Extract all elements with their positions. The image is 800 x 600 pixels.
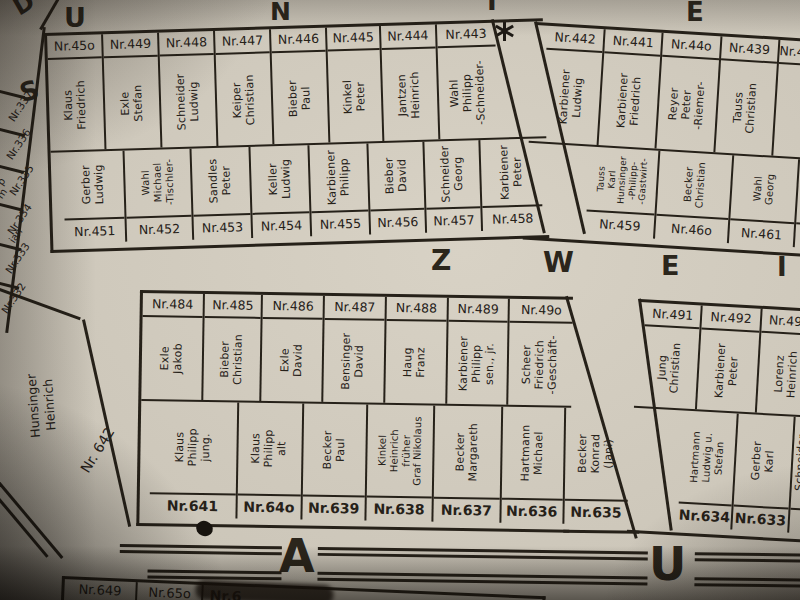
- plot-cell: Becker Konrad (Jani)Nr.635: [562, 408, 629, 525]
- plot-owner-name: Haug Franz: [402, 347, 428, 378]
- plot-owner-name: Wahl Philipp -Schneider-: [447, 60, 488, 126]
- plot-number: [789, 508, 800, 534]
- plot-owner-name: Jung Christian: [655, 342, 684, 394]
- plot-owner-name: Kinkel Peter: [341, 79, 368, 114]
- name-fragment: p: [0, 176, 8, 187]
- plot-owner-name: Wahl Georg: [752, 172, 777, 205]
- plot-number: Nr.455: [312, 209, 370, 236]
- plot-number: Nr.457: [426, 206, 481, 233]
- plot-owner-name: Scheer Friedrich -Geschäft-: [521, 334, 561, 394]
- plot-cell: Nr.489Karbiener Philipp sen., jr.: [445, 298, 508, 405]
- plot-number: Nr.487: [325, 296, 385, 321]
- plot-number: Nr.461: [729, 218, 795, 247]
- plot-number: Nr.442: [546, 26, 604, 53]
- plot-cell: Becker PaulNr.639: [300, 404, 366, 521]
- plot-number: Nr.492: [701, 306, 760, 333]
- plot-number: Nr.446: [271, 28, 326, 54]
- block-442-461: Nr.442Karbiener Ludwig Nr.441Karbiener F…: [523, 22, 800, 257]
- plot-owner-name: Bieber Christian: [219, 334, 246, 385]
- plot-number: Nr.484: [143, 293, 203, 318]
- plot-cell: Nr.447Keiper Christian: [213, 29, 272, 146]
- plot-number: Nr.451: [65, 217, 125, 244]
- plot-cell: Nr.493Lorenz Heinrich: [755, 309, 800, 416]
- plot-number: Nr.641: [149, 492, 235, 518]
- plot-owner-name: Bieber Paul: [287, 79, 314, 117]
- plot-cell: Nr.443Wahl Philipp -Schneider-: [435, 23, 499, 140]
- plot-cell: Nr.649: [63, 579, 136, 600]
- map-line: [0, 479, 63, 559]
- street-letter: T: [483, 0, 501, 16]
- plot-cell: Nr.6: [201, 585, 347, 600]
- plot-cell: Gerber KarlNr.633: [730, 414, 794, 533]
- plot-owner-name: Hunsinger Heinrich: [24, 372, 61, 438]
- plot-cell: Nr.65o: [134, 582, 202, 600]
- plot-cell: Nr.488Haug Franz: [383, 297, 446, 404]
- plot-cell: Nr.444Jantzen Heinrich: [379, 24, 438, 141]
- street-letter: W: [543, 246, 574, 279]
- plot-owner-name: Klaus Friedrich: [62, 80, 89, 130]
- plot-owner-name: Lorenz Heinrich: [772, 350, 800, 399]
- plot-number: Nr.454: [253, 211, 311, 238]
- plot-cell: Nr.49oScheer Friedrich -Geschäft-: [507, 299, 573, 406]
- plot-owner-name: Schneider Georg: [439, 145, 467, 203]
- plot-number: Nr.489: [448, 298, 508, 323]
- plot-cell: Tauss Karl Hunsinger -Philipp- -Gastwirt…: [585, 147, 658, 239]
- plot-owner-name: Kinkel Heinrich früher Graf Nikolaus: [376, 415, 424, 485]
- plot-owner-name: Tauss Christian: [731, 82, 760, 134]
- plot-number: Nr.456: [370, 208, 425, 235]
- plot-number: Nr.44o: [663, 33, 721, 60]
- plot-number: Nr.45o: [47, 34, 102, 60]
- plot-owner-name: Hartmann Michael: [519, 424, 546, 481]
- plot-cell: [345, 591, 543, 600]
- plot-owner-name: Reyer Peter -Riemer-: [667, 79, 709, 130]
- plot-owner-name: Tauss Karl Hunsinger -Philipp- -Gastwirt…: [595, 155, 651, 206]
- plot-number: Nr.438: [779, 40, 800, 66]
- map-line: [39, 0, 60, 30]
- plot-owner-name: Karbiener Ludwig: [557, 69, 586, 126]
- plot-cell: Nr.484Exle Jakob: [141, 293, 202, 400]
- plot-owner-name: Schneider Ludwig: [174, 72, 202, 130]
- plot-cell: Nr.446Bieber Paul: [269, 28, 328, 145]
- plot-owner-name: Becker Paul: [321, 430, 348, 469]
- plot-owner-name: Wahl Michael -Tischler-: [140, 159, 177, 206]
- plot-owner-name: Karbiener Peter: [498, 144, 526, 200]
- block-450-458: Nr.45oKlaus Friedrich Nr.449Exle Stefan …: [44, 18, 549, 253]
- plot-cell: Klaus Philipp jung.Nr.641: [149, 401, 236, 518]
- street-letter: E: [686, 0, 704, 27]
- plot-owner-name: Karbiener Philipp sen., jr.: [457, 335, 497, 391]
- plot-number: Nr.637: [433, 497, 499, 523]
- plot-number: Nr.445: [327, 26, 379, 52]
- plot-number: Nr.452: [126, 215, 192, 242]
- plot-number: Nr.439: [721, 36, 779, 63]
- plot-number: Nr.491: [644, 302, 700, 329]
- plot-cell: Nr.439Tauss Christian: [713, 36, 778, 155]
- plot-owner-name: Becker Margareth: [454, 422, 481, 481]
- plot-cell: Nr.487Bensinger David: [321, 296, 384, 403]
- plot-owner-name: Keller Ludwig: [267, 159, 294, 200]
- plot-number: Nr.441: [604, 29, 662, 56]
- plot-owner-name: Karbiener Friedrich: [615, 73, 644, 130]
- plot-number: Nr.635: [564, 499, 628, 525]
- plot-owner-name: Bieber David: [383, 157, 410, 195]
- plot-number: [795, 222, 800, 248]
- plot-owner-name: Exle David: [279, 344, 305, 377]
- plot-cell: Nr.441Karbiener Friedrich: [597, 29, 662, 148]
- plot-owner-name: Schneider: [793, 434, 800, 492]
- plot-owner-name: Klaus Philipp alt: [250, 429, 290, 468]
- plot-number: Nr.64o: [237, 494, 301, 520]
- street-letter: D: [8, 0, 39, 21]
- plot-number: Nr.448: [159, 31, 214, 57]
- plot-number: Nr.634: [677, 501, 731, 529]
- plot-cell: Nr.448Schneider Ludwig: [157, 31, 216, 148]
- plot-number: Nr.638: [367, 496, 432, 522]
- block-484-641: Nr.484Exle Jakob Nr.485Bieber Christian …: [136, 290, 573, 533]
- plot-owner-name: Klaus Philipp jung.: [174, 428, 214, 467]
- plot-cell: Nr.445Kinkel Peter: [325, 26, 382, 143]
- street-letter: I: [777, 252, 787, 282]
- block-491-634: Nr.491Jung Christian Nr.492Karbiener Pet…: [627, 299, 800, 543]
- plot-owner-name: Keiper Christian: [231, 74, 258, 126]
- plot-cell: Schneider GeorgNr.457: [423, 140, 482, 233]
- plot-cell: Becker ChristianNr.46o: [653, 151, 732, 243]
- plot-number: Nr.486: [263, 295, 323, 320]
- plot-number: Nr.459: [585, 209, 655, 238]
- plot-number: Nr.449: [103, 33, 158, 59]
- street-letter: Z: [431, 244, 451, 277]
- plot-number: Nr.49o: [510, 299, 573, 324]
- plot-cell: Hartmann Ludwig u. StefanNr.634: [677, 411, 736, 530]
- plot-owner-name: Gerber Karl: [750, 440, 778, 481]
- plot-cell: Sandles PeterNr.453: [190, 147, 252, 240]
- plot-number: Nr.488: [386, 297, 446, 322]
- plot-owner-name: Becker Christian: [681, 161, 707, 209]
- plot-cell: Nr.44oReyer Peter -Riemer-: [655, 33, 720, 152]
- plot-number: Nr.46o: [655, 214, 728, 243]
- street-letter: E: [661, 250, 679, 281]
- plot-number: Nr.639: [302, 495, 365, 521]
- plot-cell: Gerber LudwigNr.451: [63, 151, 125, 244]
- plot-cell: Wahl GeorgNr.461: [727, 155, 799, 247]
- plot-number: Nr.485: [204, 294, 261, 319]
- plot-cell: Bieber DavidNr.456: [366, 142, 425, 235]
- plot-number: Nr.443: [437, 23, 496, 49]
- street-letter: N: [270, 0, 291, 26]
- plot-owner-name: Exle Jakob: [159, 343, 185, 374]
- plot-owner-name: Hartmann Ludwig u. Stefan: [689, 431, 727, 485]
- plot-number: Nr.65o: [137, 582, 202, 600]
- plot-cell: Karbiener PhilippNr.455: [308, 143, 370, 236]
- plot-cell: Keller LudwigNr.454: [249, 145, 311, 238]
- plot-cell: Nr.485Bieber Christian: [201, 294, 261, 401]
- plot-owner-name: Exle Stefan: [119, 84, 146, 122]
- plot-cell: Hartmann MichaelNr.636: [499, 407, 564, 524]
- plot-number: Nr.636: [501, 498, 562, 524]
- plot-cell: Becker MargarethNr.637: [431, 406, 501, 523]
- plot-owner-name: Sandles Peter: [208, 158, 235, 203]
- plot-cell: Nr.486Exle David: [260, 295, 323, 402]
- plot-cell: Nr.491Jung Christian: [640, 302, 701, 409]
- plot-number: Nr.447: [215, 29, 270, 55]
- plot-number: Nr.649: [64, 579, 136, 600]
- plot-cell: Klaus Philipp altNr.64o: [235, 403, 302, 520]
- plot-owner-name: Gerber Ludwig: [80, 164, 107, 205]
- plot-cell: Hunsinger Heinrich: [12, 340, 72, 470]
- street-letter: U: [64, 2, 86, 33]
- plot-number: Nr.493: [761, 309, 800, 336]
- plot-number: Nr.444: [381, 24, 436, 50]
- plot-cell: Nr.45oKlaus Friedrich: [47, 34, 104, 151]
- plot-cell: Nr.449Exle Stefan: [101, 33, 160, 150]
- village-map-photo: U N T E D S Z W E I A U Nr.337 Nr.336 Nr…: [0, 0, 800, 600]
- plot-owner-name: Jantzen Heinrich: [396, 71, 423, 119]
- plot-number: Nr.453: [194, 213, 252, 240]
- plot-number: Nr.633: [732, 505, 789, 533]
- plot-cell: Kinkel Heinrich früher Graf NikolausNr.6…: [365, 405, 433, 522]
- plot-cell: Wahl Michael -Tischler-Nr.452: [122, 149, 192, 242]
- plot-owner-name: Bensinger David: [341, 333, 368, 391]
- plot-cell: Nr.492Karbiener Peter: [695, 305, 761, 412]
- plot-owner-name: Karbiener Peter: [714, 343, 743, 400]
- map-line: [82, 319, 131, 527]
- plot-owner-name: Karbiener Philipp: [325, 149, 353, 205]
